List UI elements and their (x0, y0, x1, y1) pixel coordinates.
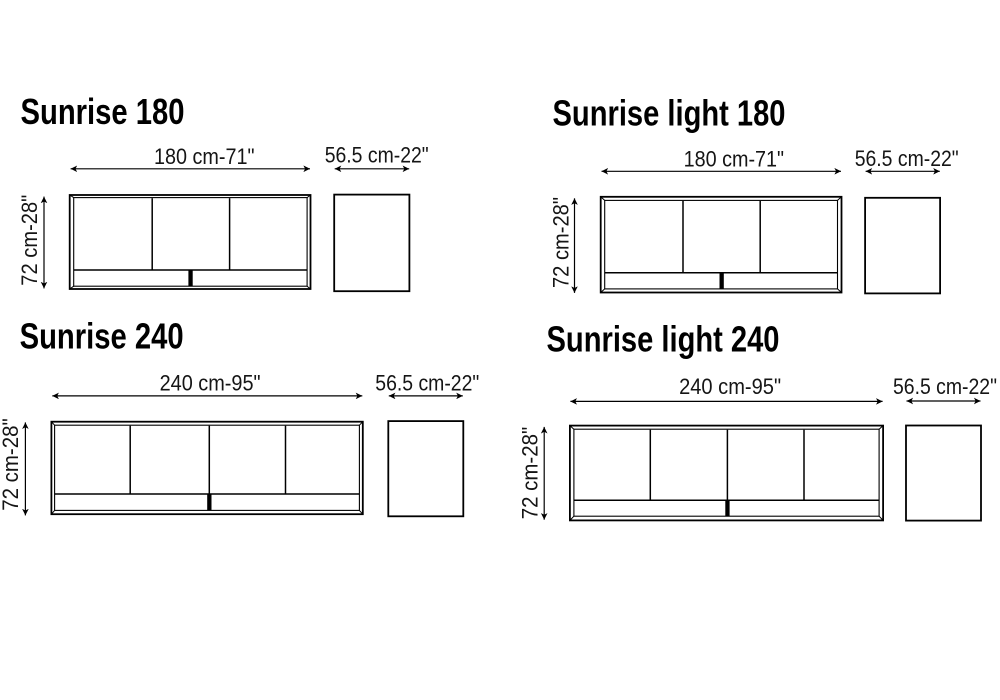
svg-text:180 cm-71": 180 cm-71" (684, 147, 785, 172)
svg-text:72 cm-28": 72 cm-28" (17, 195, 42, 286)
svg-text:56.5 cm-22": 56.5 cm-22" (893, 374, 997, 399)
svg-text:Sunrise 180: Sunrise 180 (21, 91, 185, 132)
svg-text:Sunrise light 180: Sunrise light 180 (553, 92, 786, 133)
svg-text:56.5 cm-22": 56.5 cm-22" (375, 370, 479, 395)
svg-text:240 cm-95": 240 cm-95" (679, 374, 781, 399)
svg-text:72 cm-28": 72 cm-28" (517, 427, 542, 520)
svg-text:Sunrise 240: Sunrise 240 (20, 316, 184, 357)
svg-text:72 cm-28": 72 cm-28" (0, 418, 23, 511)
svg-text:56.5 cm-22": 56.5 cm-22" (325, 143, 429, 168)
svg-text:56.5 cm-22": 56.5 cm-22" (855, 146, 959, 171)
svg-text:240 cm-95": 240 cm-95" (160, 370, 261, 395)
svg-text:72 cm-28": 72 cm-28" (549, 197, 574, 288)
svg-text:180 cm-71": 180 cm-71" (154, 144, 255, 169)
svg-text:Sunrise light 240: Sunrise light 240 (547, 319, 780, 360)
